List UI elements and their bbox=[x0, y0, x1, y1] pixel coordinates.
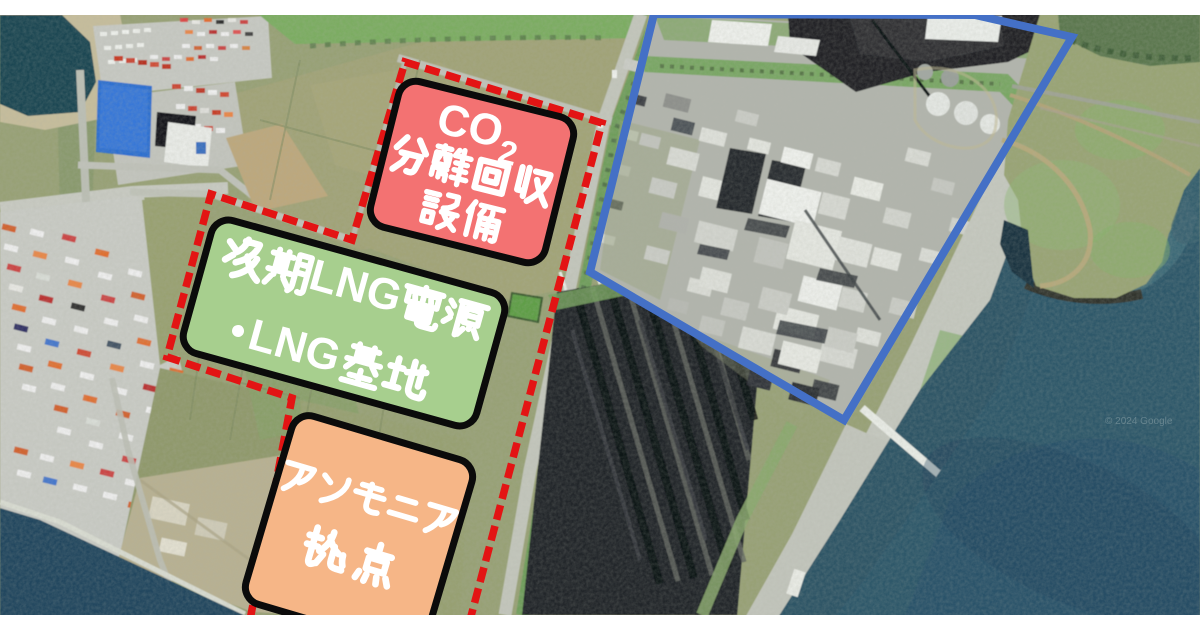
svg-text:© 2024 Google: © 2024 Google bbox=[1105, 416, 1173, 427]
